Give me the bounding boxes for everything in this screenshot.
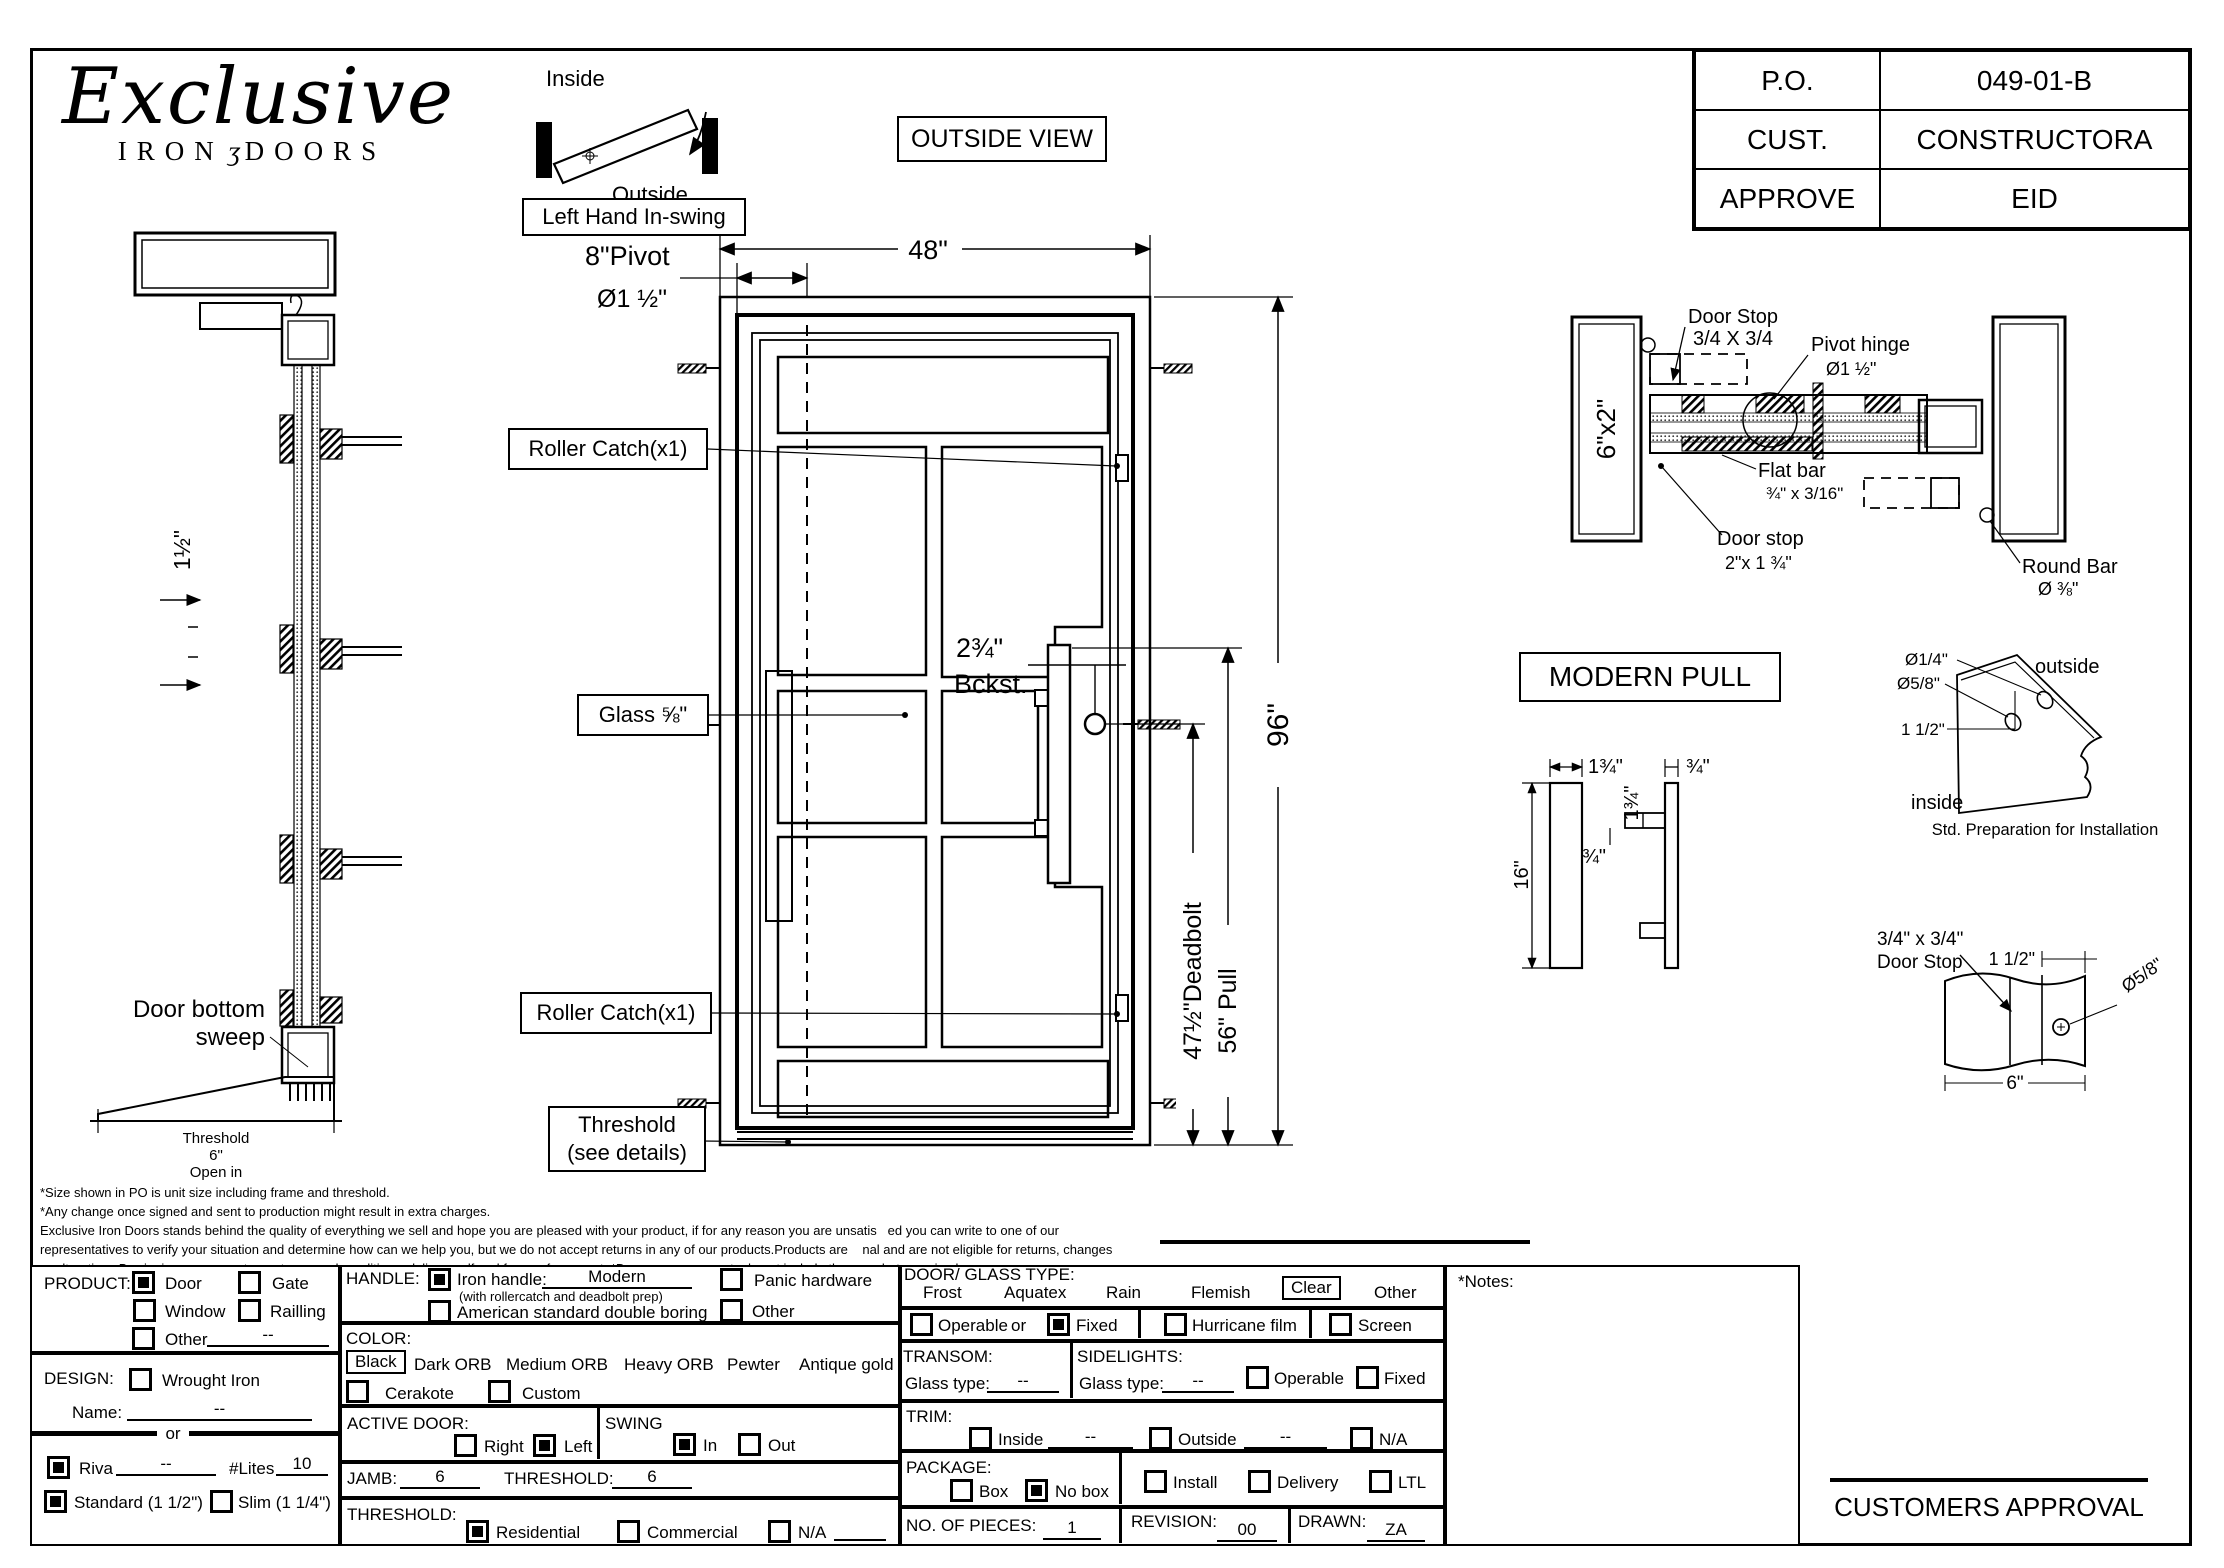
roller-catch-top-label: Roller Catch(x1)	[508, 428, 708, 470]
slim-label: Slim (1 1/4")	[238, 1493, 331, 1513]
logo-iron-text: IRON	[118, 136, 224, 166]
operable-or-label: or	[1011, 1316, 1026, 1336]
pivot-hinge-label: Pivot hinge	[1811, 334, 1910, 356]
threshold-na-label: N/A	[798, 1523, 826, 1543]
section-handle: HANDLE: Iron handle: Modern (with roller…	[340, 1265, 900, 1323]
pieces-value[interactable]: 1	[1043, 1518, 1101, 1540]
roller-catch-bottom-label: Roller Catch(x1)	[520, 992, 712, 1034]
fixed-label: Fixed	[1076, 1316, 1118, 1336]
threshold-caption-3: Open in	[190, 1164, 243, 1181]
product-other-value[interactable]: --	[207, 1325, 329, 1347]
right-jamb-tube	[1993, 317, 2065, 541]
door-leaf	[737, 315, 1133, 1128]
checkbox-trim-inside[interactable]	[969, 1427, 992, 1450]
hinge-swirl	[291, 295, 302, 315]
product-door-label: Door	[165, 1274, 202, 1294]
nobox-label: No box	[1055, 1482, 1109, 1502]
modern-pull-title: MODERN PULL	[1519, 652, 1781, 702]
sidelights-fixed-label: Fixed	[1384, 1369, 1426, 1389]
backset-word: Bckst.	[954, 669, 1028, 699]
checkbox-active-right[interactable]	[454, 1434, 477, 1457]
swing-diagram: Inside Outside	[520, 60, 770, 210]
pivot-bar	[1813, 383, 1823, 459]
approve-value: EID	[1880, 169, 2189, 228]
commercial-label: Commercial	[647, 1523, 738, 1543]
section-jamb: JAMB: 6 THRESHOLD: 6	[340, 1462, 900, 1498]
checkbox-american-standard[interactable]	[428, 1300, 451, 1323]
pull-tab-lower	[1640, 923, 1665, 938]
color-heavyorb-option[interactable]: Heavy ORB	[624, 1355, 714, 1375]
logo-ornament: ʒ	[228, 136, 240, 166]
logo-script-text: Exclusive	[62, 52, 442, 142]
swing-in-label: In	[703, 1436, 717, 1456]
checkbox-window[interactable]	[133, 1299, 156, 1322]
color-pewter-option[interactable]: Pewter	[727, 1355, 780, 1375]
product-other-label: Other	[165, 1330, 208, 1350]
checkbox-trim-na[interactable]	[1350, 1427, 1373, 1450]
stop-hole-dia: Ø5/8"	[2118, 954, 2167, 996]
sidelights-glass-type-label: Glass type:	[1079, 1374, 1164, 1394]
lites-label: #Lites	[229, 1459, 274, 1479]
checkbox-ltl[interactable]	[1369, 1470, 1392, 1493]
backset-value: 2¾"	[956, 633, 1003, 663]
pivot-offset-label: 8"Pivot	[585, 241, 670, 271]
checkbox-operable[interactable]	[910, 1313, 933, 1336]
swing-out-label: Out	[768, 1436, 795, 1456]
checkbox-standard[interactable]	[44, 1490, 67, 1513]
round-bar-label: Round Bar	[2022, 556, 2118, 578]
drawn-label: DRAWN:	[1298, 1512, 1366, 1532]
jamb-threshold-label: THRESHOLD:	[504, 1469, 614, 1489]
threshold-caption-1: Threshold	[183, 1130, 250, 1147]
sweep-label-2: sweep	[196, 1024, 265, 1051]
checkbox-active-left[interactable]	[533, 1434, 556, 1457]
color-mediumorb-option[interactable]: Medium ORB	[506, 1355, 608, 1375]
thickness-dim: 1½"	[169, 530, 195, 570]
section-color: COLOR: Black Dark ORB Medium ORB Heavy O…	[340, 1323, 900, 1406]
round-bar-size: Ø ⅜"	[2038, 579, 2078, 599]
package-label: PACKAGE:	[906, 1458, 992, 1478]
pieces-label: NO. OF PIECES:	[906, 1516, 1036, 1536]
stop-size-label-1: 3/4" x 3/4"	[1877, 929, 1963, 950]
section-threshold: THRESHOLD: Residential Commercial N/A	[340, 1498, 900, 1546]
pull-dim: 56" Pull	[1214, 968, 1242, 1053]
section-transom-sidelights: TRANSOM: Glass type: -- SIDELIGHTS: Glas…	[900, 1341, 1445, 1401]
po-value: 049-01-B	[1880, 51, 2189, 110]
form-top-rule	[1160, 1240, 1530, 1244]
trim-outside-value[interactable]: --	[1244, 1427, 1327, 1449]
glass-label: Glass ⅝"	[577, 694, 709, 736]
section-notes: *Notes:	[1445, 1265, 1800, 1546]
custom-color-label: Custom	[522, 1384, 581, 1404]
glass-clear-option[interactable]: Clear	[1282, 1276, 1341, 1300]
glass-rain-option[interactable]: Rain	[1106, 1283, 1141, 1303]
modern-pull-detail: 16" 1¾" ¾" 1¾" ¾"	[1510, 715, 1840, 1015]
design-name-label: Name:	[72, 1403, 122, 1423]
section-glass-type: DOOR/ GLASS TYPE: Frost Aquatex Rain Fle…	[900, 1265, 1445, 1308]
glass-strip	[294, 365, 302, 1027]
header-section	[135, 233, 335, 295]
disclaimer-line-4: representatives to verify your situation…	[40, 1240, 1112, 1259]
approve-label: APPROVE	[1695, 169, 1880, 228]
active-right-label: Right	[484, 1437, 524, 1457]
trim-outside-label: Outside	[1178, 1430, 1237, 1450]
stop-offset-dim: 1 1/2"	[1989, 949, 2035, 969]
threshold-na-value[interactable]	[834, 1519, 886, 1541]
outside-view-label: OUTSIDE VIEW	[897, 116, 1107, 162]
color-darkorb-option[interactable]: Dark ORB	[414, 1355, 491, 1375]
box-label: Box	[979, 1482, 1008, 1502]
door-stop-dashed-bottom	[1864, 478, 1959, 508]
swing-inside-label: Inside	[546, 66, 605, 91]
left-jamb-block	[536, 122, 552, 178]
checkbox-nobox[interactable]	[1025, 1479, 1048, 1502]
handle-other-label: Other	[752, 1302, 795, 1322]
height-dim: 96"	[1262, 703, 1295, 747]
trim-inside-value[interactable]: --	[1048, 1427, 1133, 1449]
jamb-value[interactable]: 6	[400, 1467, 480, 1489]
riva-label: Riva	[79, 1459, 113, 1479]
header-stop	[200, 303, 282, 329]
glass-type-label: DOOR/ GLASS TYPE:	[904, 1265, 1075, 1285]
deadbolt-dim: 47½"Deadbolt	[1179, 902, 1207, 1060]
top-rail-section	[282, 315, 334, 365]
swing-label: SWING	[605, 1414, 663, 1434]
section-trim: TRIM: Inside -- Outside -- N/A	[900, 1401, 1445, 1451]
handle-label: HANDLE:	[346, 1269, 420, 1289]
checkbox-box[interactable]	[950, 1479, 973, 1502]
glazing-clip	[280, 990, 342, 1026]
cust-label: CUST.	[1695, 110, 1880, 169]
color-black-option[interactable]: Black	[346, 1350, 406, 1374]
checkbox-sidelights-operable[interactable]	[1246, 1366, 1269, 1389]
iron-handle-subtext: (with rollercatch and deadbolt prep)	[459, 1289, 663, 1304]
door-stop-detail: 3/4" x 3/4" Door Stop 1 1/2" Ø5/8" 6"	[1865, 915, 2185, 1105]
lites-value[interactable]: 10	[276, 1454, 328, 1476]
pull-depth-dim: 1¾"	[1588, 756, 1623, 778]
checkbox-iron-handle[interactable]	[428, 1268, 451, 1291]
design-or-label: or	[157, 1424, 189, 1443]
active-left-label: Left	[564, 1437, 592, 1457]
flat-bar-label: Flat bar	[1758, 460, 1826, 482]
design-wrought-label: Wrought Iron	[162, 1371, 260, 1391]
transom-glass-value[interactable]: --	[987, 1371, 1059, 1393]
checkbox-handle-other[interactable]	[720, 1299, 743, 1322]
right-jamb-block	[702, 118, 718, 174]
cust-value: CONSTRUCTORA	[1880, 110, 2189, 169]
stop-size-label-2: Door Stop	[1877, 952, 1963, 973]
checkbox-slim[interactable]	[210, 1490, 233, 1513]
pull-side-view	[1550, 783, 1582, 968]
bracket-inside-label: inside	[1911, 792, 1963, 814]
approval-signature-line[interactable]	[1830, 1478, 2148, 1482]
color-antiquegold-option[interactable]: Antique gold	[799, 1355, 894, 1375]
checkbox-hurricane-film[interactable]	[1164, 1313, 1187, 1336]
hurricane-film-label: Hurricane film	[1192, 1316, 1297, 1336]
iron-handle-value[interactable]: Modern	[542, 1267, 692, 1289]
door-stop-bottom-label: Door stop	[1717, 528, 1804, 550]
strike-jamb	[1919, 400, 1982, 453]
standard-label: Standard (1 1/2")	[74, 1493, 203, 1513]
bracket-shape	[1957, 655, 2101, 813]
ltl-label: LTL	[1398, 1473, 1426, 1493]
notes-label: *Notes:	[1458, 1272, 1514, 1292]
threshold-note-label: Threshold (see details)	[548, 1106, 706, 1172]
checkbox-threshold-na[interactable]	[768, 1520, 791, 1543]
bracket-hole-dia-1: Ø1/4"	[1905, 650, 1948, 669]
po-label: P.O.	[1695, 51, 1880, 110]
jamb-size-label: 6"x2"	[1591, 399, 1621, 459]
width-dim: 48"	[908, 235, 948, 265]
door-leaf-swing	[554, 110, 697, 183]
pivot-diameter-label: Ø1 ½"	[597, 285, 667, 313]
bracket-hole-dia-2: Ø5/8"	[1897, 674, 1940, 693]
sidelights-label: SIDELIGHTS:	[1077, 1347, 1183, 1367]
section-riva: Riva -- #Lites 10 Standard (1 1/2") Slim…	[30, 1433, 340, 1546]
pull-handle	[1048, 645, 1070, 883]
checkbox-product-other[interactable]	[132, 1327, 155, 1350]
section-pieces: NO. OF PIECES: 1 REVISION: 00 DRAWN: ZA	[900, 1507, 1445, 1546]
disclaimer: *Size shown in PO is unit size including…	[40, 1183, 1112, 1278]
bottom-rail-section	[282, 1027, 334, 1083]
transom-label: TRANSOM:	[903, 1347, 993, 1367]
pull-length-dim: 16"	[1511, 860, 1533, 889]
american-standard-label: American standard double boring	[457, 1303, 707, 1323]
title-block: P.O. 049-01-B CUST. CONSTRUCTORA APPROVE…	[1692, 48, 2192, 231]
checkbox-wrought-iron[interactable]	[129, 1368, 152, 1391]
threshold-note-1: Threshold	[578, 1111, 676, 1139]
disclaimer-line-3: Exclusive Iron Doors stands behind the q…	[40, 1221, 1112, 1240]
disclaimer-line-2: *Any change once signed and sent to prod…	[40, 1202, 1112, 1221]
roller-catch-mark-bottom	[1116, 995, 1128, 1021]
glass-other-option[interactable]: Other	[1374, 1283, 1417, 1303]
pivot-hinge-dia: Ø1 ½"	[1826, 359, 1876, 379]
checkbox-trim-outside[interactable]	[1149, 1427, 1172, 1450]
screen-label: Screen	[1358, 1316, 1412, 1336]
checkbox-riva[interactable]	[47, 1456, 70, 1479]
checkbox-screen[interactable]	[1329, 1313, 1352, 1336]
jamb-screws	[678, 364, 1192, 1108]
checkbox-door[interactable]	[132, 1271, 155, 1294]
glass-strip	[312, 365, 320, 1027]
sidelights-glass-value[interactable]: --	[1162, 1371, 1234, 1393]
glass-aquatex-option[interactable]: Aquatex	[1004, 1283, 1066, 1303]
trim-label: TRIM:	[906, 1407, 952, 1427]
installation-bracket-detail: Ø1/4" Ø5/8" 1 1/2" outside inside Std. P…	[1895, 625, 2205, 845]
door-stop-top-label-1: Door Stop	[1688, 306, 1778, 328]
product-label: PRODUCT:	[44, 1274, 131, 1294]
flat-bar-size: ¾" x 3/16"	[1766, 484, 1843, 503]
product-window-label: Window	[165, 1302, 225, 1322]
product-railling-label: Railling	[270, 1302, 326, 1322]
revision-value[interactable]: 00	[1217, 1520, 1277, 1542]
design-name-value[interactable]: --	[127, 1399, 312, 1421]
design-label: DESIGN:	[44, 1369, 114, 1389]
trim-na-label: N/A	[1379, 1430, 1407, 1450]
checkbox-commercial[interactable]	[617, 1520, 640, 1543]
checkbox-custom-color[interactable]	[488, 1380, 511, 1403]
checkbox-swing-out[interactable]	[738, 1433, 761, 1456]
threshold-caption-2: 6"	[209, 1147, 223, 1164]
disclaimer-line-1: *Size shown in PO is unit size including…	[40, 1183, 1112, 1202]
bracket-caption: Std. Preparation for Installation	[1932, 821, 2159, 839]
drawn-value[interactable]: ZA	[1367, 1520, 1425, 1542]
delivery-label: Delivery	[1277, 1473, 1338, 1493]
door-stop-bottom-size: 2"x 1 ¾"	[1725, 553, 1792, 573]
active-door-label: ACTIVE DOOR:	[347, 1414, 469, 1434]
color-label: COLOR:	[346, 1329, 411, 1349]
glass-flemish-option[interactable]: Flemish	[1191, 1283, 1251, 1303]
checkbox-fixed[interactable]	[1047, 1313, 1070, 1336]
section-active-swing: ACTIVE DOOR: Right Left SWING In Out	[340, 1406, 900, 1462]
sweep-label-1: Door bottom	[133, 996, 265, 1023]
checkbox-railling[interactable]	[238, 1299, 261, 1322]
residential-label: Residential	[496, 1523, 580, 1543]
checkbox-cerakote[interactable]	[346, 1380, 369, 1403]
hinge-section-detail: 6"x2" Door Stop 3/4 X 3/4 Pivot hinge Ø1…	[1560, 295, 2140, 605]
threshold-note-2: (see details)	[567, 1139, 687, 1167]
pull-width-dim: ¾"	[1686, 756, 1710, 778]
checkbox-install[interactable]	[1144, 1470, 1167, 1493]
door-stop-top-label-2: 3/4 X 3/4	[1693, 328, 1773, 350]
checkbox-panic-hardware[interactable]	[720, 1268, 743, 1291]
riva-value[interactable]: --	[116, 1454, 216, 1476]
bracket-outside-label: outside	[2035, 656, 2100, 678]
jamb-threshold-value[interactable]: 6	[612, 1467, 692, 1489]
checkbox-residential[interactable]	[466, 1520, 489, 1543]
logo-doors-text: DOORS	[245, 136, 387, 166]
bracket-offset-dim: 1 1/2"	[1901, 720, 1945, 739]
threshold-label: THRESHOLD:	[347, 1505, 457, 1525]
checkbox-delivery[interactable]	[1248, 1470, 1271, 1493]
checkbox-sidelights-fixed[interactable]	[1356, 1366, 1379, 1389]
checkbox-gate[interactable]	[238, 1271, 261, 1294]
door-stop-dashed-top	[1650, 354, 1747, 384]
deadbolt	[1085, 714, 1105, 734]
pull-tab-dim-1: 1¾"	[1621, 786, 1643, 821]
jamb-label: JAMB:	[347, 1469, 397, 1489]
section-package: PACKAGE: Box No box Install Delivery LTL	[900, 1451, 1445, 1507]
cerakote-label: Cerakote	[385, 1384, 454, 1404]
iron-handle-label: Iron handle:	[457, 1270, 547, 1290]
trim-inside-label: Inside	[998, 1430, 1043, 1450]
install-label: Install	[1173, 1473, 1217, 1493]
revision-label: REVISION:	[1131, 1512, 1217, 1532]
section-design: DESIGN: Wrought Iron Name: --	[30, 1353, 340, 1433]
logo: Exclusive IRON ʒ DOORS	[62, 52, 442, 167]
pull-tab-dim-2: ¾"	[1582, 846, 1606, 868]
glass-frost-option[interactable]: Frost	[923, 1283, 962, 1303]
transom-glass-type-label: Glass type:	[905, 1374, 990, 1394]
jamb-vertical-section: 1½" Door bottom sweep Threshold 6" Open …	[60, 215, 370, 1205]
operable-label: Operable	[938, 1316, 1008, 1336]
bottom-sweep-bristles	[290, 1083, 330, 1101]
section-product: PRODUCT: Door Gate Window Railling Other…	[30, 1265, 340, 1353]
sidelights-operable-label: Operable	[1274, 1369, 1344, 1389]
checkbox-swing-in[interactable]	[673, 1433, 696, 1456]
section-operable-fixed: Operable or Fixed Hurricane film Screen	[900, 1308, 1445, 1341]
panic-hardware-label: Panic hardware	[754, 1271, 872, 1291]
product-gate-label: Gate	[272, 1274, 309, 1294]
approval-label: CUSTOMERS APPROVAL	[1822, 1492, 2156, 1523]
pull-front-view	[1665, 783, 1678, 968]
stop-width-dim: 6"	[2006, 1073, 2023, 1094]
